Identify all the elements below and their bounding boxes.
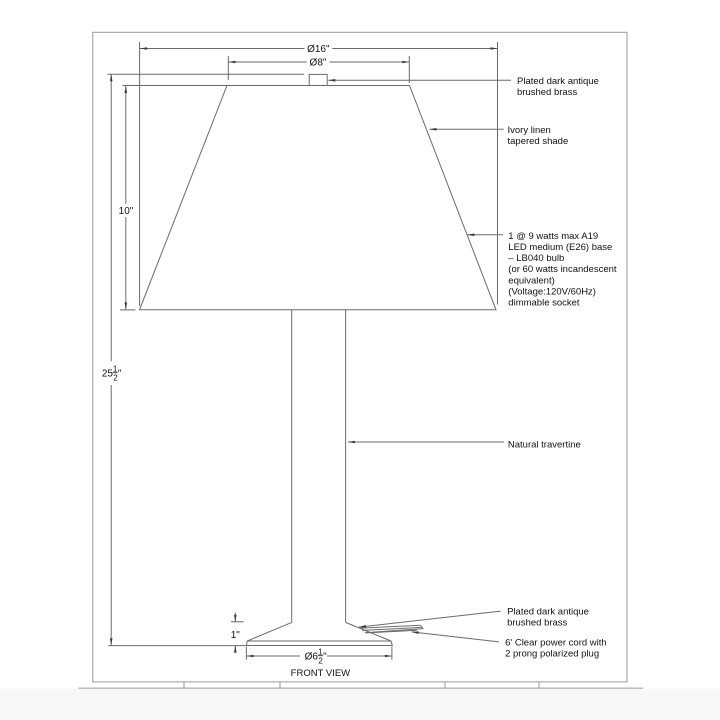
svg-text:2 prong polarized plug: 2 prong polarized plug <box>505 648 599 659</box>
svg-text:tapered shade: tapered shade <box>508 136 569 147</box>
svg-text:Plated dark antique: Plated dark antique <box>517 76 599 87</box>
svg-text:LED medium (E26) base: LED medium (E26) base <box>508 242 612 253</box>
svg-text:dimmable socket: dimmable socket <box>508 298 580 309</box>
svg-text:": " <box>323 652 327 663</box>
svg-text:1 @ 9 watts max A19: 1 @ 9 watts max A19 <box>508 231 598 242</box>
svg-text:equivalent): equivalent) <box>508 275 554 286</box>
svg-text:Plated dark antique: Plated dark antique <box>507 607 589 618</box>
svg-text:Ø6: Ø6 <box>305 652 319 663</box>
svg-text:10": 10" <box>119 206 134 217</box>
svg-text:25: 25 <box>102 369 114 380</box>
svg-text:FRONT VIEW: FRONT VIEW <box>291 668 350 679</box>
svg-text:(or 60 watts incandescent: (or 60 watts incandescent <box>508 264 617 275</box>
svg-text:1": 1" <box>231 630 241 641</box>
svg-text:Ø16": Ø16" <box>307 44 330 55</box>
svg-text:(Voltage:120V/60Hz): (Voltage:120V/60Hz) <box>508 286 596 297</box>
svg-text:Ø8": Ø8" <box>310 58 327 69</box>
svg-text:brushed brass: brushed brass <box>517 87 577 98</box>
svg-text:– LB040 bulb: – LB040 bulb <box>508 253 564 264</box>
svg-text:Natural travertine: Natural travertine <box>508 439 581 450</box>
svg-text:6' Clear power cord with: 6' Clear power cord with <box>505 637 607 648</box>
svg-text:": " <box>118 369 122 380</box>
svg-text:Ivory linen: Ivory linen <box>508 125 551 136</box>
svg-text:brushed brass: brushed brass <box>507 618 567 629</box>
